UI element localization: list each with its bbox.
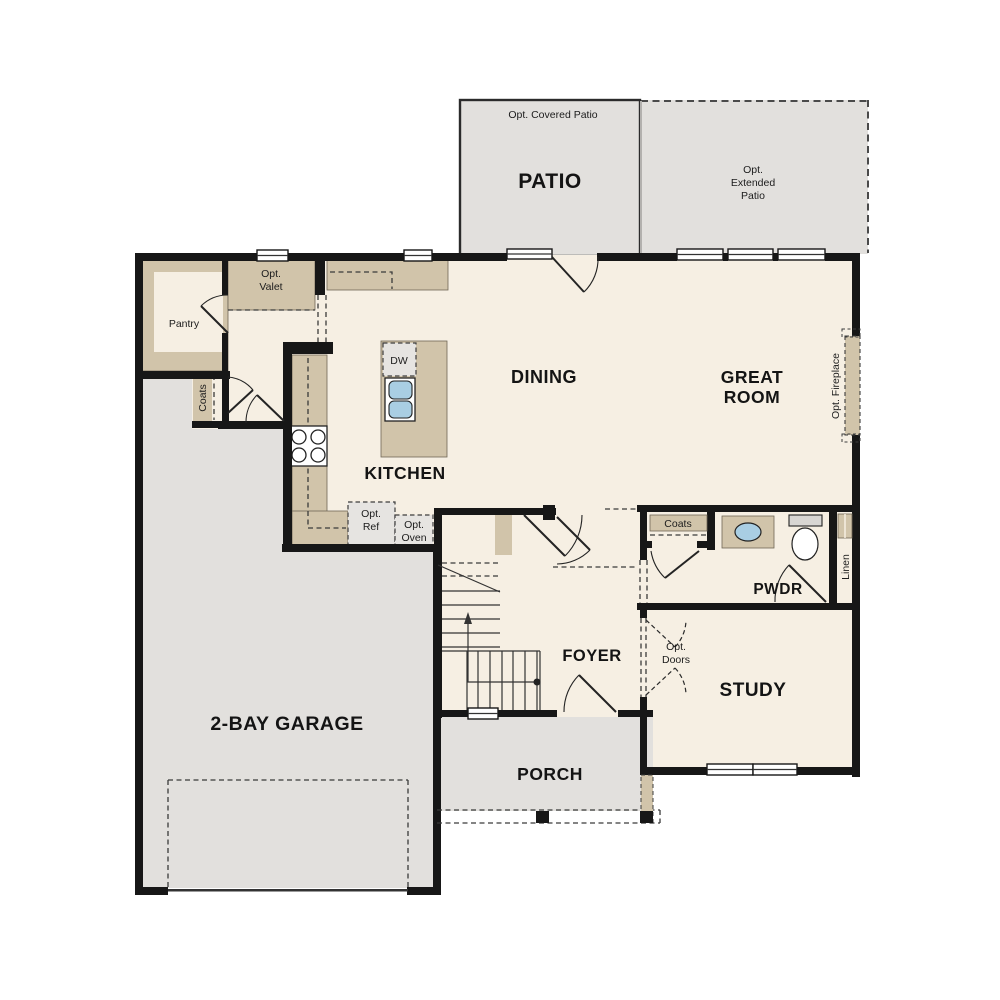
garage-door-opening	[168, 889, 408, 892]
coats-hall-label: Coats	[664, 518, 691, 530]
sink-icon	[735, 523, 761, 541]
burner-icon	[311, 430, 325, 444]
toilet-bowl-icon	[792, 528, 818, 560]
porch-post	[536, 811, 549, 823]
svg-text:ROOM: ROOM	[724, 387, 780, 407]
sink-basin-icon	[389, 401, 412, 418]
window	[728, 249, 773, 260]
room-label-dining: DINING	[511, 367, 577, 387]
dw-label: DW	[390, 355, 408, 367]
toilet-tank-icon	[789, 515, 822, 526]
opt-oven-label: Opt.	[404, 519, 424, 531]
window	[778, 249, 825, 260]
patio-door-sidelite	[507, 249, 552, 259]
svg-text:Extended: Extended	[731, 177, 776, 189]
fireplace-box	[845, 336, 860, 435]
cooktop	[289, 426, 327, 466]
opt-extended-patio-label: Opt.	[743, 164, 763, 176]
burner-icon	[311, 448, 325, 462]
coats-left-label: Coats	[197, 384, 209, 411]
sink-basin-icon	[389, 381, 412, 399]
porch-post	[640, 811, 653, 823]
pantry-label: Pantry	[169, 318, 200, 330]
svg-text:Patio: Patio	[741, 190, 765, 202]
room-label-pwdr: PWDR	[753, 581, 802, 598]
burner-icon	[292, 430, 306, 444]
stair-line-end-dot	[534, 679, 541, 686]
window	[753, 764, 797, 775]
room-label-kitchen: KITCHEN	[364, 463, 445, 483]
room-label-patio: PATIO	[518, 170, 582, 193]
room-label-porch: PORCH	[517, 764, 583, 784]
window	[404, 250, 432, 261]
kitchen-top-counter	[327, 259, 448, 290]
room-label-study: STUDY	[720, 680, 787, 701]
window	[677, 249, 723, 260]
opt-covered-patio-label: Opt. Covered Patio	[508, 109, 597, 121]
window	[468, 708, 498, 719]
room-label-garage: 2-BAY GARAGE	[210, 713, 363, 735]
foyer-closet-shelf	[495, 515, 512, 555]
opt-valet-label: Opt.	[261, 268, 281, 280]
svg-text:Oven: Oven	[401, 532, 426, 544]
svg-text:Doors: Doors	[662, 654, 690, 666]
room-label-foyer: FOYER	[562, 647, 621, 665]
window	[707, 764, 753, 775]
floor-plan-drawing: Opt. Covered Patio PATIO Opt. Extended P…	[0, 0, 1000, 1000]
opt-ref-label: Opt.	[361, 508, 381, 520]
burner-icon	[292, 448, 306, 462]
floor-plan-page: Opt. Covered Patio PATIO Opt. Extended P…	[0, 0, 1000, 1000]
room-label-great-room: GREAT	[721, 367, 783, 387]
opt-doors-label: Opt.	[666, 641, 686, 653]
opt-fireplace-label: Opt. Fireplace	[830, 353, 842, 419]
linen-label: Linen	[840, 554, 852, 580]
svg-text:Ref: Ref	[363, 521, 379, 533]
pantry-interior	[154, 272, 223, 352]
window	[257, 250, 288, 261]
svg-text:Valet: Valet	[259, 281, 282, 293]
